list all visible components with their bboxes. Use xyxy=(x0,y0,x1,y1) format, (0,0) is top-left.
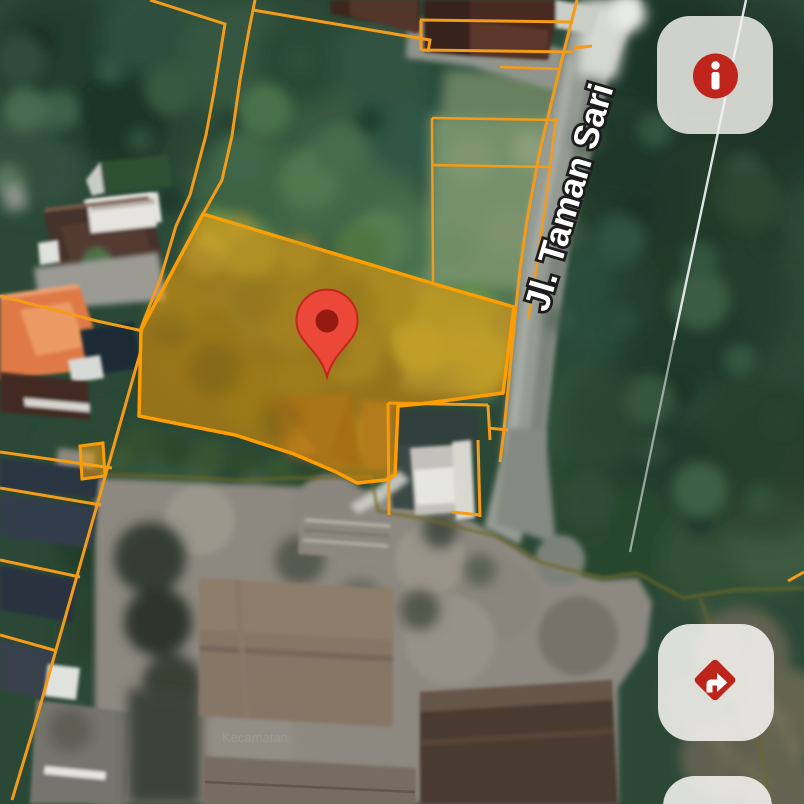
svg-text:Kecamatan: Kecamatan xyxy=(222,730,288,745)
